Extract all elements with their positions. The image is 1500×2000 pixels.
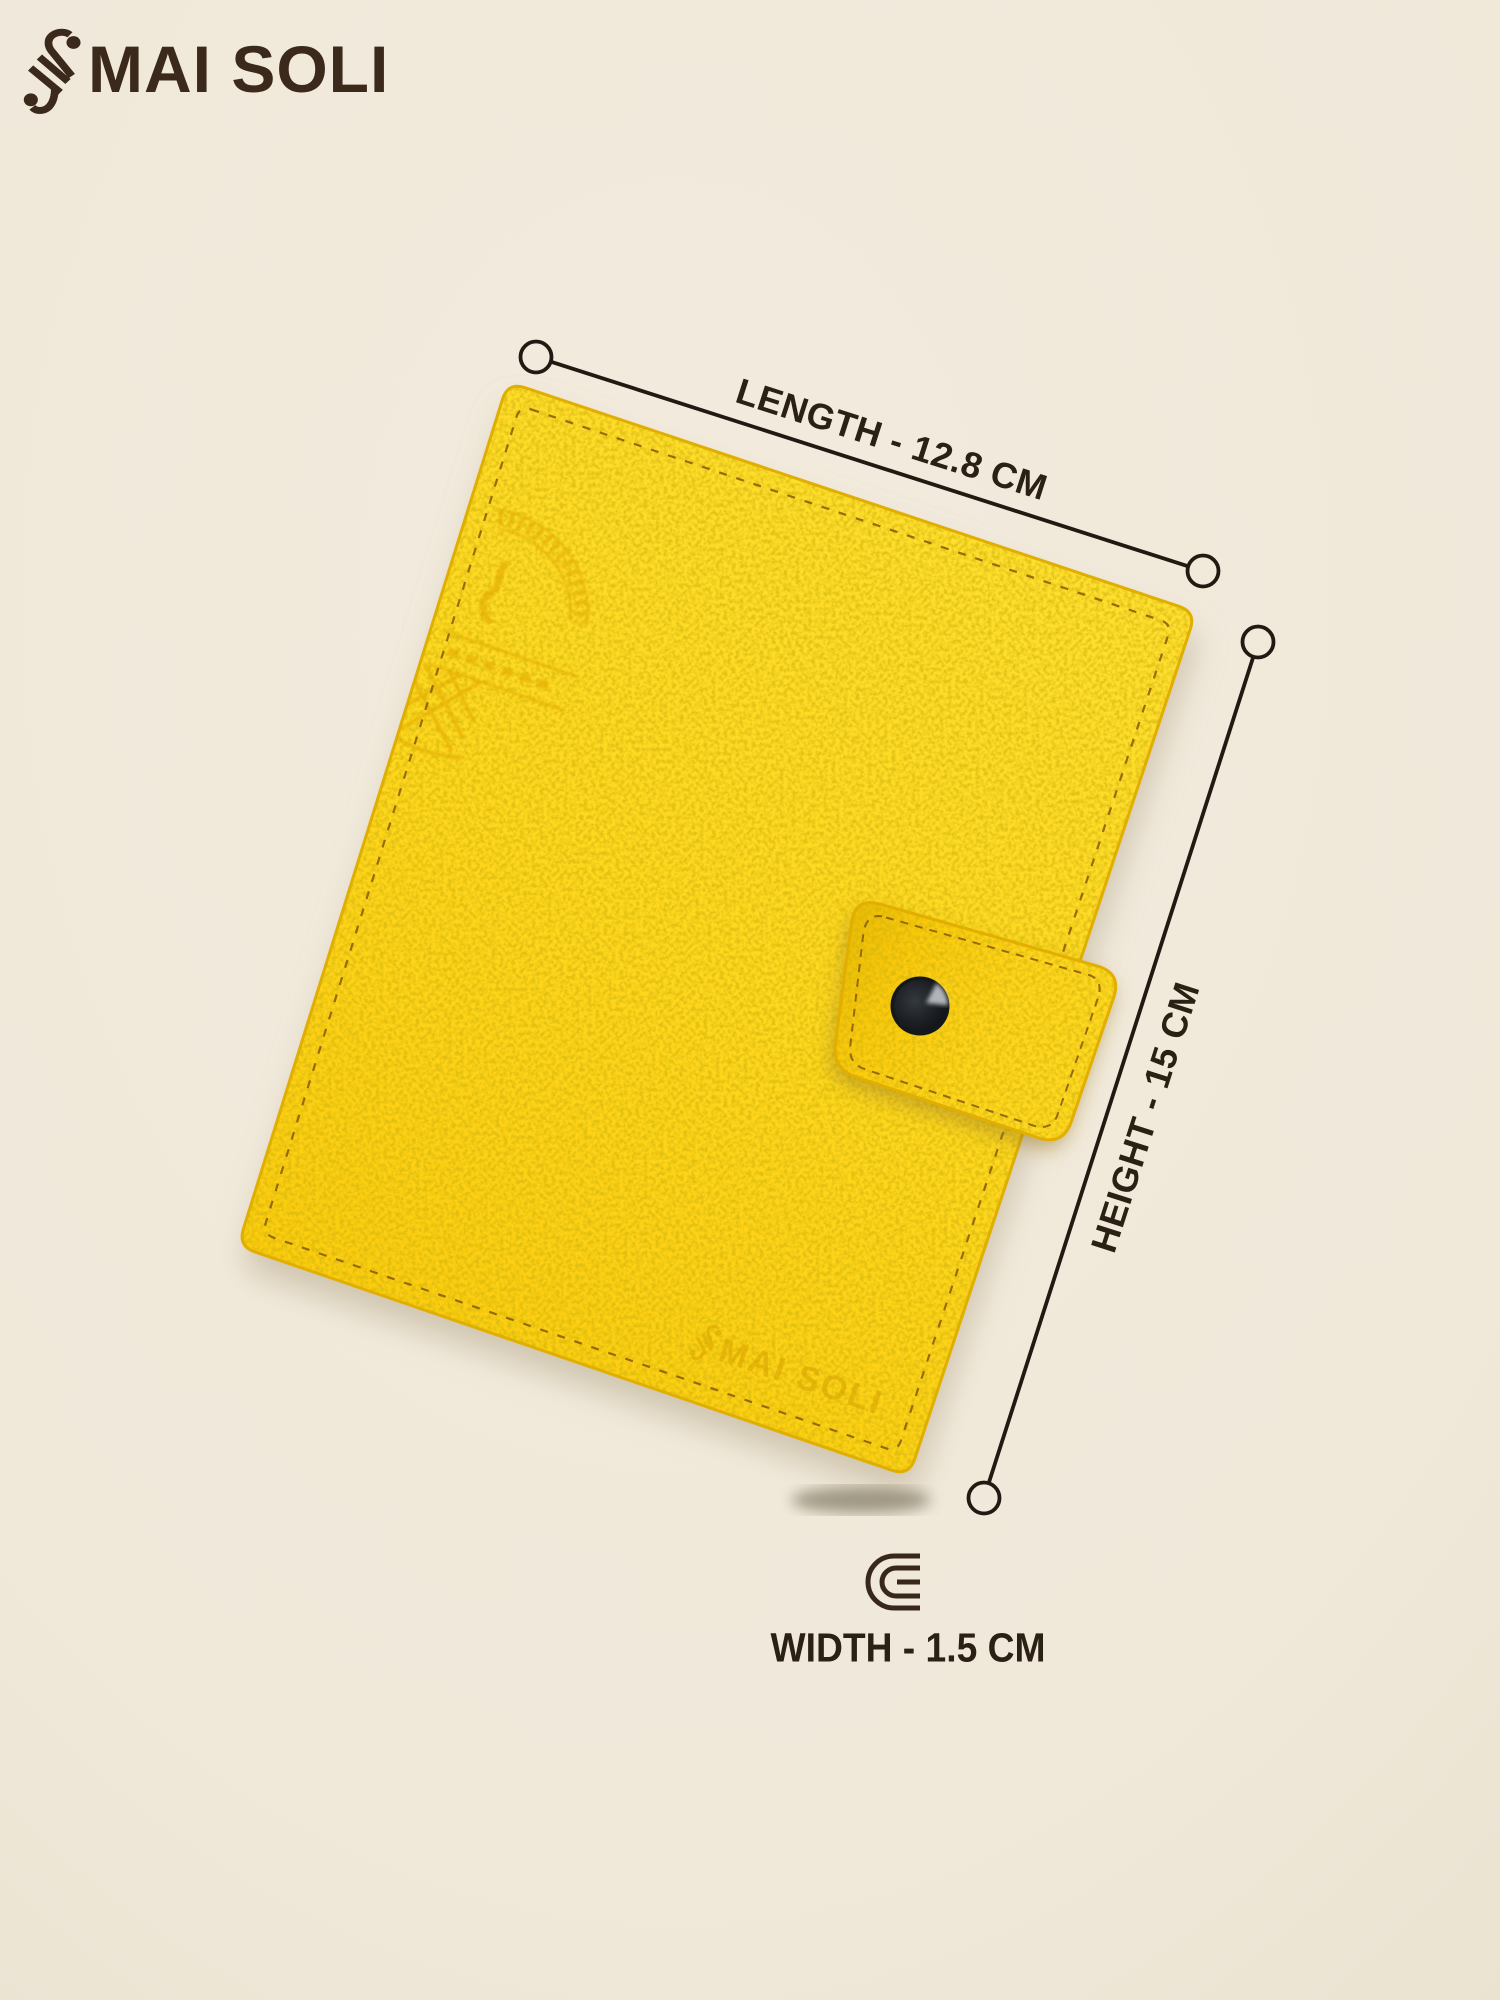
- svg-text:MAI SOLI: MAI SOLI: [88, 32, 389, 106]
- svg-text:WIDTH - 1.5 CM: WIDTH - 1.5 CM: [771, 1625, 1046, 1671]
